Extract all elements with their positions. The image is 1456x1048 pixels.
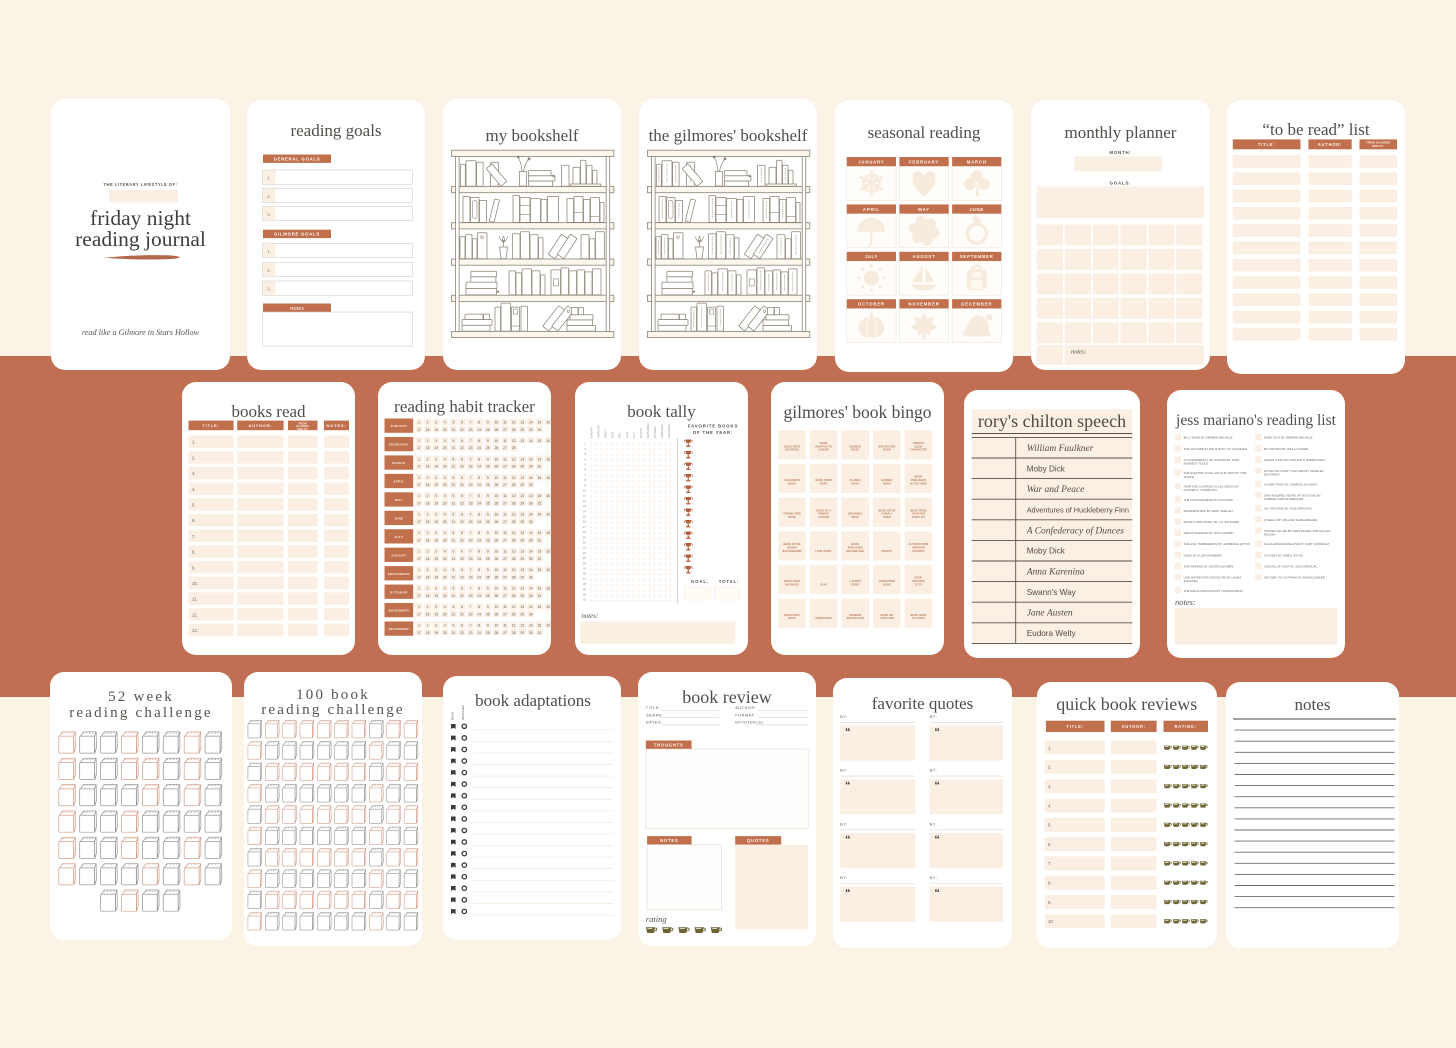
svg-text:22: 22 [460,631,464,635]
svg-text:2: 2 [427,623,429,627]
svg-text:8: 8 [478,531,480,535]
svg-text:NOTES:: NOTES: [327,423,347,428]
svg-text:NON-FICTION: NON-FICTION [878,444,895,448]
svg-text:22: 22 [460,446,464,450]
svg-text:52 week: 52 week [108,689,174,705]
svg-text:17: 17 [417,557,421,561]
svg-text:18: 18 [583,530,587,534]
svg-text:6: 6 [461,550,463,554]
svg-text:3: 3 [435,457,437,461]
svg-text:26: 26 [495,631,499,635]
svg-text:1: 1 [418,476,420,480]
svg-text:3: 3 [435,605,437,609]
svg-text:25: 25 [486,483,490,487]
svg-text:9.: 9. [192,565,196,570]
svg-text:4: 4 [444,420,446,424]
svg-text:7: 7 [470,568,472,572]
svg-text:Moby Dick: Moby Dick [1027,547,1066,556]
svg-text:6: 6 [461,439,463,443]
svg-text:BEFORE 1900: BEFORE 1900 [847,549,865,553]
svg-text:10: 10 [495,439,499,443]
svg-text:26: 26 [495,465,499,469]
svg-text:VISIONS OF CODY BY JACK KEROUA: VISIONS OF CODY BY JACK KEROUAC [1264,564,1318,568]
svg-text:21: 21 [452,594,456,598]
svg-text:25: 25 [486,465,490,469]
svg-text:5: 5 [452,605,454,609]
svg-text:IN THE 1800S: IN THE 1800S [910,481,927,485]
svg-text:BESTSELLER: BESTSELLER [847,616,864,620]
svg-text:the gilmores' bookshelf: the gilmores' bookshelf [649,126,808,145]
svg-text:3: 3 [435,531,437,535]
svg-text:29: 29 [520,557,524,561]
svg-text:READ: READ [451,711,455,720]
svg-text:5: 5 [452,457,454,461]
svg-text:1: 1 [418,550,420,554]
svg-text:6.: 6. [192,518,196,523]
svg-text:19: 19 [434,446,438,450]
svg-text:reading challenge: reading challenge [261,702,405,718]
svg-text:28: 28 [512,446,516,450]
svg-text:8.: 8. [1048,881,1052,886]
svg-text:16: 16 [583,520,587,524]
svg-text:BILLY BUDD BY HERMAN MELVILLE: BILLY BUDD BY HERMAN MELVILLE [1184,436,1233,440]
svg-text:22: 22 [460,502,464,506]
svg-text:16: 16 [546,439,550,443]
svg-text:13: 13 [520,494,524,498]
svg-text:THE LITERARY LIFESTYLE OF:: THE LITERARY LIFESTYLE OF: [104,182,178,187]
svg-text:BOOK RORY: BOOK RORY [784,613,800,617]
svg-text:DATES:: DATES: [646,721,663,725]
svg-text:13: 13 [520,568,524,572]
svg-text:8: 8 [478,457,480,461]
svg-text:9: 9 [487,457,489,461]
svg-text:21: 21 [452,483,456,487]
svg-text:2: 2 [427,605,429,609]
svg-text:10: 10 [495,568,499,572]
svg-text:book adaptations: book adaptations [475,691,591,710]
svg-text:BOOK ON: BOOK ON [881,613,894,617]
svg-text:15: 15 [538,568,542,572]
svg-text:BOOK: BOOK [851,481,859,485]
svg-text:30: 30 [529,557,533,561]
svg-text:TITLE:: TITLE: [202,423,219,428]
svg-text:29: 29 [520,575,524,579]
svg-text:1.: 1. [267,176,270,181]
svg-text:17: 17 [583,525,587,529]
svg-text:2: 2 [427,586,429,590]
svg-text:MARCH: MARCH [392,461,405,465]
svg-text:BOOK: BOOK [915,475,923,479]
svg-text:13.: 13. [192,628,198,633]
svg-text:BOOK OVER: BOOK OVER [784,579,800,583]
svg-text:11: 11 [583,494,586,498]
svg-text:Moby Dick: Moby Dick [1027,464,1066,473]
svg-text:GOAL:: GOAL: [691,579,709,584]
svg-text:7: 7 [470,494,472,498]
svg-text:STAR LIST: STAR LIST [912,515,926,519]
svg-text:28: 28 [583,582,587,586]
svg-text:18: 18 [426,446,430,450]
svg-text:7: 7 [470,439,472,443]
svg-text:11: 11 [503,550,507,554]
svg-text:7: 7 [584,473,586,477]
svg-text:6: 6 [461,494,463,498]
svg-text:6: 6 [461,586,463,590]
svg-text:24: 24 [477,539,481,543]
svg-text:ULYSSES BY JAMES JOYCE: ULYSSES BY JAMES JOYCE [1264,553,1303,557]
svg-text:27: 27 [503,539,507,543]
svg-text:11: 11 [503,439,507,443]
svg-text:18: 18 [426,612,430,616]
svg-text:15: 15 [538,623,542,627]
svg-text:19: 19 [434,465,438,469]
svg-text:7.: 7. [1048,861,1052,866]
svg-text:21: 21 [583,546,587,550]
svg-text:5: 5 [452,494,454,498]
svg-text:5: 5 [452,550,454,554]
svg-text:BOOK FROM: BOOK FROM [910,508,926,512]
svg-text:25: 25 [486,502,490,506]
svg-text:20: 20 [443,502,447,506]
svg-text:4: 4 [444,494,446,498]
svg-text:Adventures of Huckleberry Finn: Adventures of Huckleberry Finn [1027,506,1129,515]
svg-text:20: 20 [443,428,447,432]
svg-text:“: “ [934,780,940,792]
svg-text:17: 17 [417,539,421,543]
svg-text:HER FITZGERALD BY NICK HORNBY: HER FITZGERALD BY NICK HORNBY [1184,531,1234,535]
svg-text:A SMALL: A SMALL [881,512,893,516]
svg-text:OLIVER TWIST BY CHARLES DICKEN: OLIVER TWIST BY CHARLES DICKENS [1264,482,1317,486]
svg-text:9: 9 [487,550,489,554]
svg-text:4: 4 [444,550,446,554]
svg-text:TITLE:: TITLE: [1066,724,1084,729]
svg-text:books read: books read [231,402,306,421]
svg-text:18: 18 [426,539,430,543]
svg-text:5: 5 [452,439,454,443]
svg-text:21: 21 [452,575,456,579]
svg-text:BY:: BY: [840,822,848,826]
svg-text:5: 5 [452,513,454,517]
svg-text:TITLE:: TITLE: [646,706,661,710]
svg-text:27: 27 [503,612,507,616]
svg-text:13: 13 [520,513,524,517]
svg-text:MAY: MAY [918,207,930,212]
svg-text:10: 10 [495,605,499,609]
svg-text:BY:: BY: [930,769,938,773]
svg-text:24: 24 [583,561,587,565]
svg-text:27: 27 [503,502,507,506]
svg-text:BANNED: BANNED [881,478,892,482]
svg-text:“: “ [845,834,851,846]
svg-text:8: 8 [584,478,586,482]
svg-text:14: 14 [529,531,533,535]
svg-text:2: 2 [427,513,429,517]
svg-text:19: 19 [434,428,438,432]
svg-text:16: 16 [546,623,550,627]
svg-text:22: 22 [460,557,464,561]
svg-text:20: 20 [443,557,447,561]
svg-text:16: 16 [546,420,550,424]
svg-text:16: 16 [546,586,550,590]
svg-text:18: 18 [426,428,430,432]
svg-text:12: 12 [512,420,516,424]
svg-text:22: 22 [460,483,464,487]
svg-text:22: 22 [460,539,464,543]
svg-text:10: 10 [495,420,499,424]
svg-text:1: 1 [418,420,420,424]
svg-text:3: 3 [584,452,586,456]
svg-text:3.: 3. [1048,784,1052,789]
svg-text:24: 24 [477,446,481,450]
svg-text:COUNTRY: COUNTRY [912,549,925,553]
svg-text:13: 13 [520,476,524,480]
svg-text:6: 6 [461,513,463,517]
svg-text:14: 14 [529,476,533,480]
svg-text:OF THE YEAR:: OF THE YEAR: [693,430,734,435]
svg-text:11: 11 [503,494,507,498]
svg-text:1: 1 [418,494,420,498]
svg-text:20: 20 [443,631,447,635]
svg-text:12: 12 [512,605,516,609]
svg-text:NOVEMBER: NOVEMBER [661,424,664,438]
svg-text:7: 7 [470,605,472,609]
svg-text:MARCH: MARCH [967,159,987,164]
svg-text:24: 24 [477,483,481,487]
svg-text:JANUARY: JANUARY [858,159,884,164]
svg-text:seasonal reading: seasonal reading [868,123,981,142]
svg-text:29: 29 [520,465,524,469]
svg-text:BOOK SET IN: BOOK SET IN [878,508,895,512]
svg-text:12: 12 [512,623,516,627]
svg-text:DECEMBER: DECEMBER [389,627,410,631]
svg-text:FEBRUARY: FEBRUARY [909,159,939,164]
svg-text:2: 2 [427,439,429,443]
svg-text:NONFICTION: NONFICTION [816,616,832,620]
svg-text:MODERN: MODERN [849,613,861,617]
svg-text:24: 24 [477,631,481,635]
svg-text:18: 18 [426,483,430,487]
svg-text:OVERHYPED: OVERHYPED [879,579,895,583]
svg-text:23: 23 [469,594,473,598]
svg-text:24: 24 [477,502,481,506]
svg-text:William Faulkner: William Faulkner [1027,444,1094,454]
svg-text:YOUR FIVE: YOUR FIVE [911,512,925,516]
svg-text:reading challenge: reading challenge [69,705,213,721]
svg-text:17: 17 [417,483,421,487]
svg-text:8: 8 [478,568,480,572]
svg-text:BOOK: BOOK [915,576,923,580]
svg-text:28: 28 [512,612,516,616]
svg-text:2.: 2. [267,194,270,199]
svg-text:27: 27 [503,428,507,432]
svg-text:TOTAL:: TOTAL: [719,579,740,584]
svg-text:17: 17 [417,612,421,616]
svg-text:reading goals: reading goals [290,121,381,140]
svg-text:Swann's Way: Swann's Way [1027,588,1077,597]
svg-text:27: 27 [503,520,507,524]
svg-text:6: 6 [461,420,463,424]
svg-text:10: 10 [495,494,499,498]
svg-text:30: 30 [529,539,533,543]
svg-text:EPISODE(S):: EPISODE(S): [735,721,765,725]
svg-text:24: 24 [477,557,481,561]
svg-text:13: 13 [583,504,587,508]
svg-text:5: 5 [452,586,454,590]
svg-text:27: 27 [583,577,587,581]
svg-text:25: 25 [486,631,490,635]
svg-text:RORY: RORY [820,481,828,485]
svg-text:17: 17 [417,465,421,469]
svg-text:10: 10 [495,531,499,535]
svg-text:19: 19 [434,502,438,506]
svg-text:19: 19 [434,612,438,616]
svg-text:THE FOUNTAINHEAD BY AYN RAND: THE FOUNTAINHEAD BY AYN RAND [1184,498,1233,502]
svg-text:28: 28 [512,428,516,432]
svg-text:6: 6 [461,457,463,461]
svg-text:15: 15 [538,605,542,609]
svg-text:29: 29 [520,502,524,506]
svg-text:BACKGROUND: BACKGROUND [782,549,801,553]
svg-text:15: 15 [538,476,542,480]
svg-text:GENRE:: GENRE: [646,713,664,717]
svg-text:16: 16 [546,568,550,572]
svg-text:13: 13 [520,550,524,554]
svg-text:22: 22 [583,551,587,555]
svg-text:9: 9 [487,568,489,572]
svg-text:11: 11 [503,605,507,609]
svg-text:4: 4 [444,476,446,480]
svg-text:FAMOUS: FAMOUS [818,512,829,516]
svg-text:MCCAIN: MCCAIN [1264,533,1275,537]
svg-text:6: 6 [461,623,463,627]
svg-text:ON THE ROAD BY JACK KEROUAC: ON THE ROAD BY JACK KEROUAC [1264,507,1312,511]
svg-text:31: 31 [538,539,542,543]
svg-text:ADAPTED: ADAPTED [912,579,925,583]
svg-text:JANUARY: JANUARY [390,424,407,428]
svg-text:16: 16 [546,605,550,609]
svg-text:1.: 1. [1048,745,1052,750]
svg-text:26: 26 [495,446,499,450]
svg-text:A SHORT: A SHORT [849,579,861,583]
svg-text:Anna Karenina: Anna Karenina [1026,568,1085,578]
svg-text:25: 25 [486,446,490,450]
svg-text:4: 4 [444,531,446,535]
svg-text:BOOK: BOOK [883,481,891,485]
svg-text:AUTHOR:: AUTHOR: [248,423,272,428]
svg-text:7: 7 [470,550,472,554]
svg-text:my bookshelf: my bookshelf [485,126,578,145]
svg-text:SEPTEMBER: SEPTEMBER [960,254,994,259]
svg-text:28: 28 [512,557,516,561]
svg-text:10: 10 [583,489,587,493]
svg-text:31: 31 [538,428,542,432]
svg-text:THE MAGIC MOUNTAIN BY THOMAS M: THE MAGIC MOUNTAIN BY THOMAS MANN [1184,589,1243,593]
svg-text:31: 31 [538,502,542,506]
svg-text:PLAY: PLAY [820,583,827,587]
svg-text:23: 23 [469,557,473,561]
svg-text:21: 21 [452,631,456,635]
svg-text:2: 2 [427,494,429,498]
svg-text:GOALS:: GOALS: [1110,181,1132,186]
svg-text:18: 18 [426,465,430,469]
svg-text:GILMORE GOALS: GILMORE GOALS [274,232,320,237]
svg-text:20: 20 [443,575,447,579]
svg-text:30: 30 [529,612,533,616]
svg-text:12: 12 [512,586,516,590]
svg-text:6: 6 [461,568,463,572]
svg-text:BY:: BY: [840,715,848,719]
svg-text:AUTHOR FROM: AUTHOR FROM [909,542,928,546]
svg-text:A MOVIE: A MOVIE [818,448,829,452]
svg-text:4: 4 [444,586,446,590]
svg-text:22: 22 [460,428,464,432]
svg-text:28: 28 [512,575,516,579]
svg-text:22: 22 [460,594,464,598]
svg-text:13: 13 [520,531,524,535]
svg-text:18: 18 [426,520,430,524]
svg-text:FEBRUARY: FEBRUARY [389,443,409,447]
svg-text:20: 20 [443,465,447,469]
svg-text:15: 15 [538,531,542,535]
svg-text:BOOK BY A: BOOK BY A [816,508,831,512]
svg-text:1: 1 [584,442,586,446]
svg-text:5: 5 [452,568,454,572]
svg-text:Eudora Welty: Eudora Welty [1027,629,1077,638]
svg-text:21: 21 [452,502,456,506]
svg-text:OCTOBER: OCTOBER [390,590,408,594]
svg-text:3.: 3. [192,471,196,476]
svg-text:5: 5 [584,463,586,467]
svg-text:14: 14 [529,420,533,424]
svg-text:30: 30 [529,631,533,635]
svg-text:book tally: book tally [627,402,696,421]
svg-text:30: 30 [529,575,533,579]
svg-text:26: 26 [495,539,499,543]
svg-text:TRANSLATED: TRANSLATED [783,512,801,516]
svg-text:gilmores' book bingo: gilmores' book bingo [783,402,931,422]
svg-text:21: 21 [452,612,456,616]
svg-text:APRIL: APRIL [393,480,404,484]
svg-text:29: 29 [520,428,524,432]
svg-text:BY:: BY: [930,715,938,719]
svg-text:13: 13 [520,623,524,627]
svg-text:30: 30 [529,483,533,487]
svg-text:AUTHOR:: AUTHOR: [735,706,756,710]
svg-text:300 PAGES: 300 PAGES [785,448,799,452]
svg-text:NOVEMBER: NOVEMBER [908,302,939,307]
svg-text:18: 18 [426,502,430,506]
svg-text:14: 14 [529,550,533,554]
svg-text:21: 21 [452,446,456,450]
svg-text:JUNE: JUNE [626,431,629,438]
svg-text:FORMAT:: FORMAT: [735,713,756,717]
svg-text:17: 17 [417,502,421,506]
svg-text:11: 11 [503,568,507,572]
svg-text:3: 3 [435,550,437,554]
svg-text:19: 19 [434,483,438,487]
svg-text:4: 4 [584,457,586,461]
svg-text:NAKED LUNCH BY WILLIAM S. BURR: NAKED LUNCH BY WILLIAM S. BURROUGHS [1264,458,1325,462]
svg-text:12: 12 [512,494,516,498]
svg-text:CLASSIC: CLASSIC [850,478,862,482]
svg-text:16: 16 [546,476,550,480]
svg-text:JULY: JULY [633,432,636,438]
svg-text:BOOK READ: BOOK READ [910,613,926,617]
svg-text:1: 1 [418,586,420,590]
svg-text:PUBLISHED: PUBLISHED [911,478,926,482]
svg-text:21: 21 [452,465,456,469]
svg-text:READ: READ [852,515,859,519]
